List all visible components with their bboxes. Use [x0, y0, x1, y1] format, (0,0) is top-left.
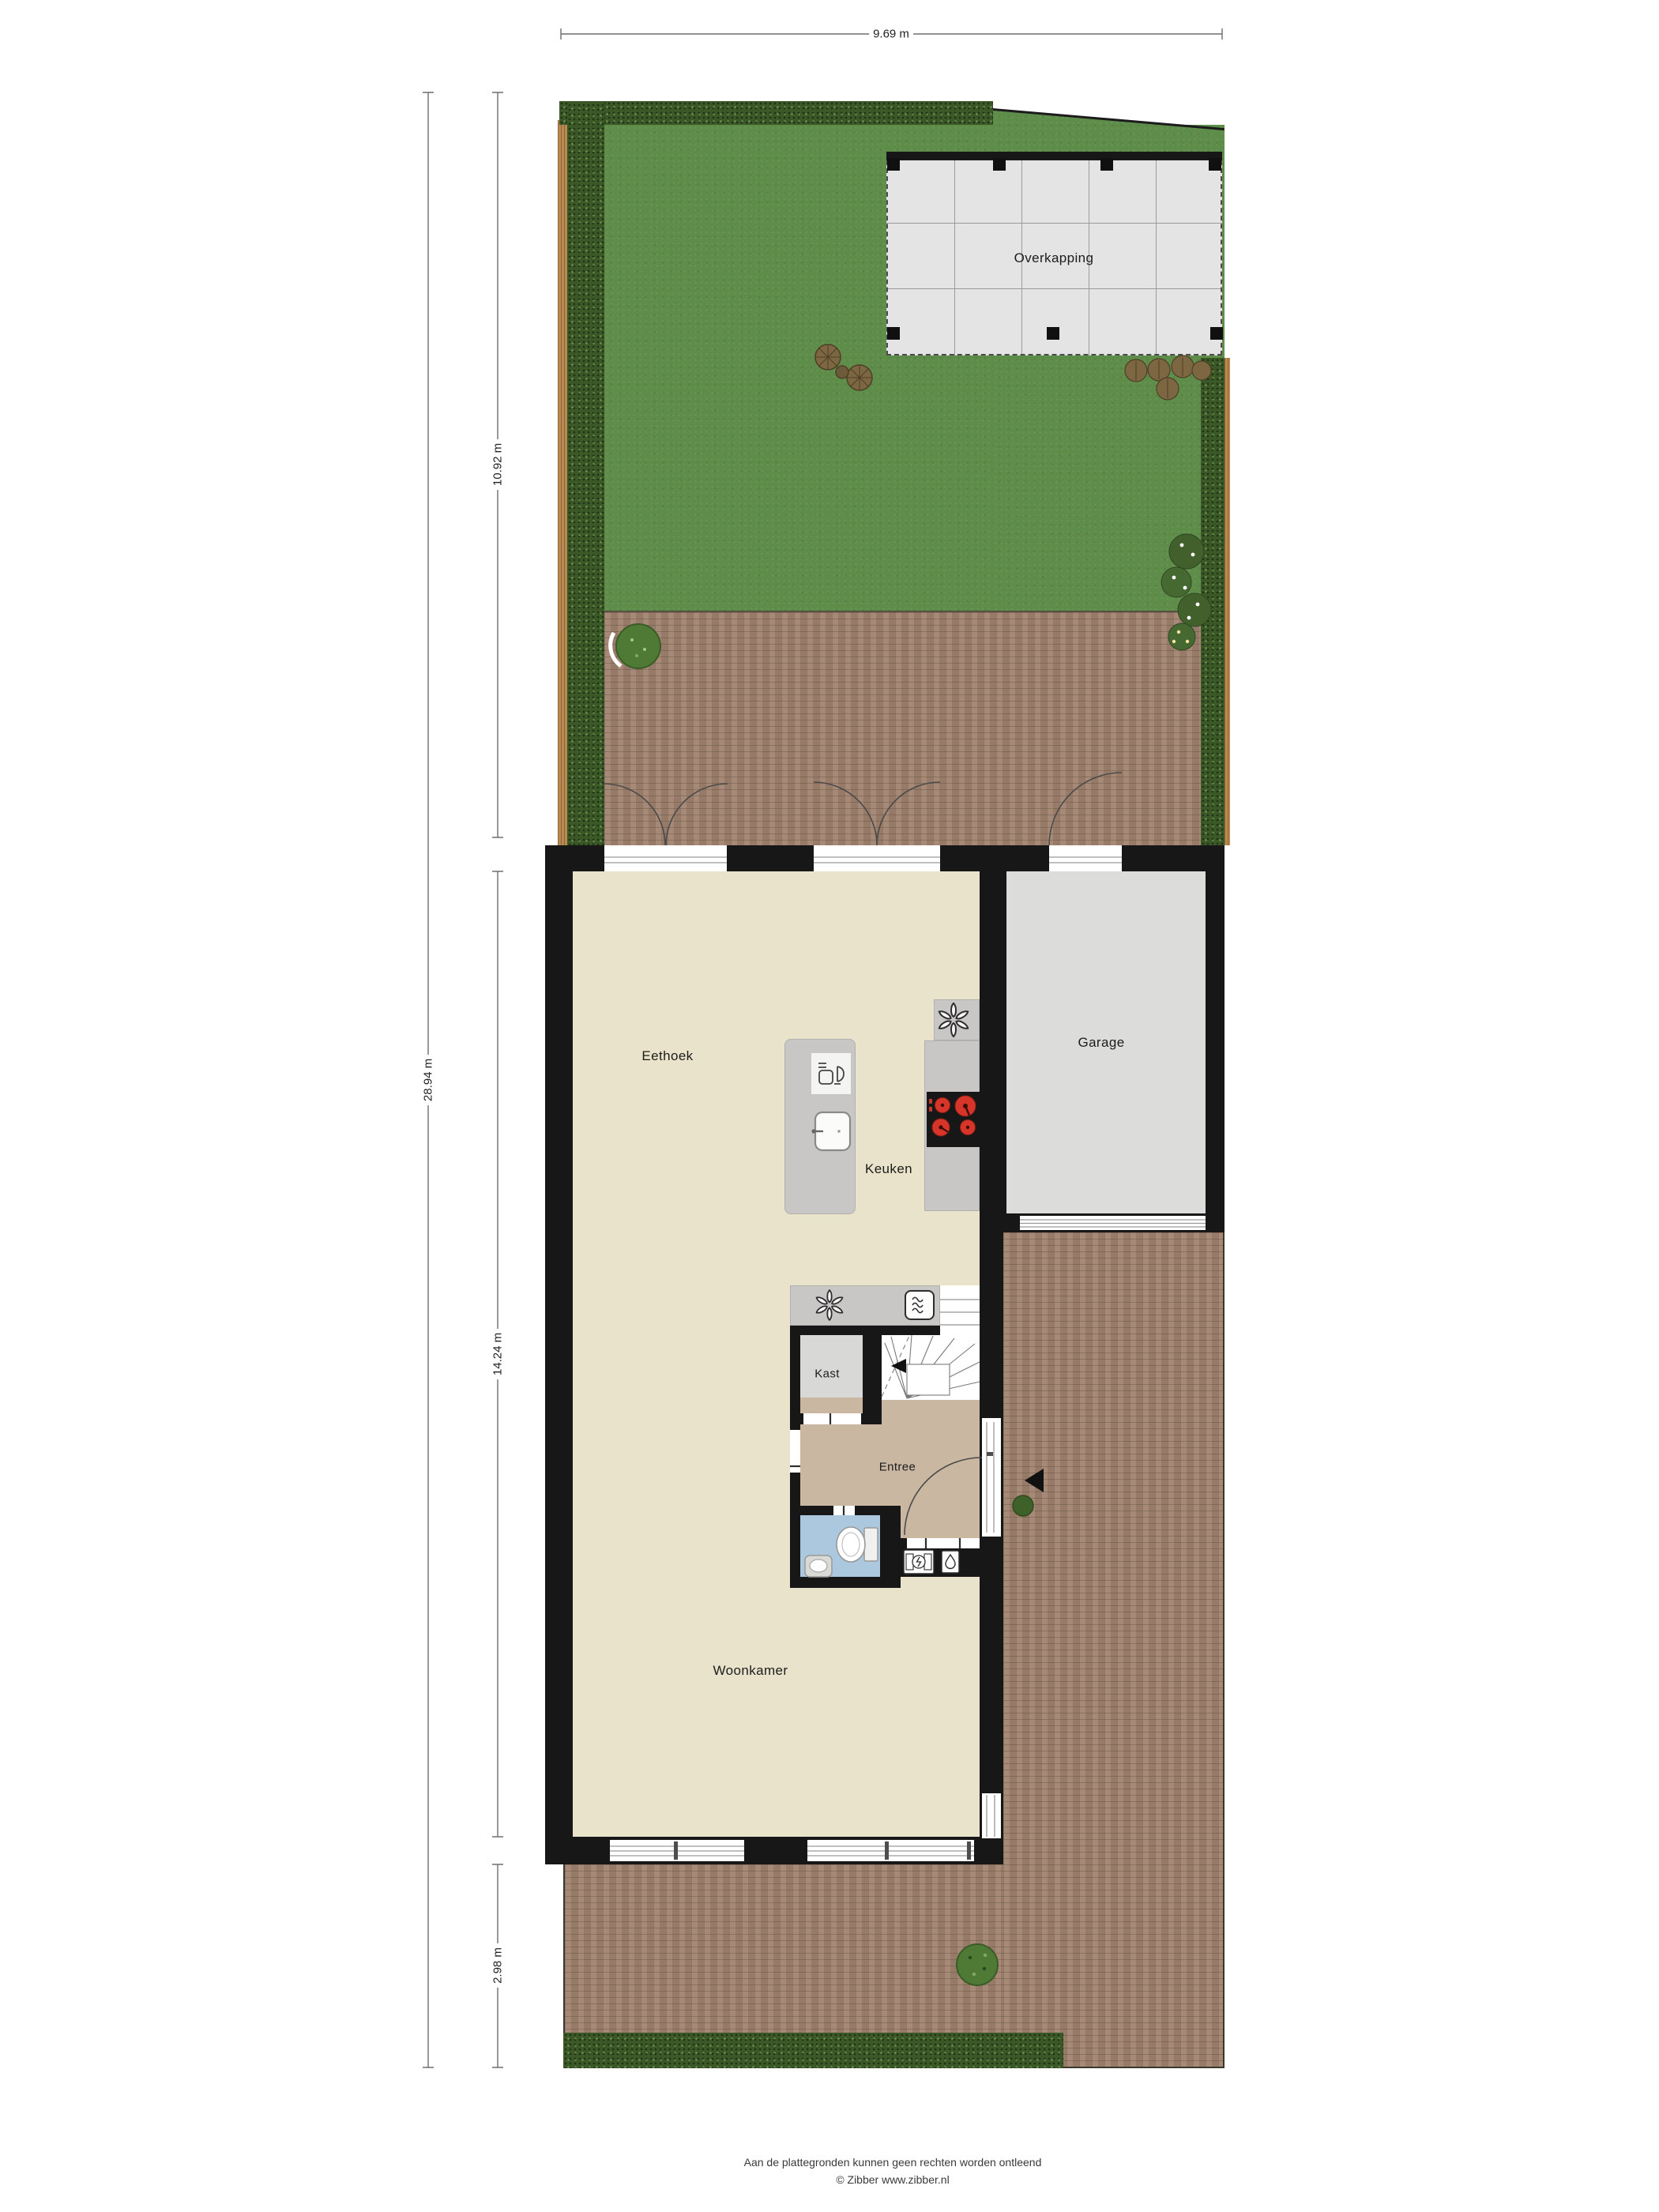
room-label-overkapping: Overkapping	[1014, 250, 1094, 266]
oven-icon	[905, 1291, 934, 1319]
footer-disclaimer: Aan de plattegronden kunnen geen rechten…	[744, 2156, 1042, 2169]
washbasin-icon	[805, 1556, 832, 1577]
door-swing-arcs	[604, 773, 1122, 1535]
flowering-shrub-icon	[1161, 534, 1211, 650]
dimension-total-width: 9.69 m	[869, 27, 913, 42]
floorplan-page: Overkapping Eethoek Keuken Garage Kast E…	[0, 0, 1659, 2212]
toilet-icon	[837, 1527, 878, 1562]
footer-copyright: © Zibber www.zibber.nl	[836, 2173, 949, 2186]
fan-icon	[815, 1290, 843, 1320]
front-door-bush-icon	[1013, 1495, 1033, 1516]
sink-icon	[811, 1112, 850, 1150]
window-mullions	[674, 1452, 993, 1860]
dishwasher-icon	[818, 1063, 844, 1084]
electric-meter-icon	[904, 1550, 934, 1574]
room-label-eethoek: Eethoek	[641, 1048, 693, 1064]
dimension-garden-depth: 10.92 m	[491, 439, 506, 490]
dimension-front-yard-depth: 2.98 m	[491, 1943, 506, 1988]
entrance-arrow-icon	[1025, 1469, 1044, 1492]
terrace-bush-icon	[611, 624, 660, 668]
cooktop-icon	[929, 1096, 976, 1136]
room-label-kast: Kast	[814, 1367, 840, 1381]
room-label-entree: Entree	[879, 1461, 916, 1474]
tree-cluster-icon	[1125, 355, 1211, 400]
room-label-keuken: Keuken	[865, 1161, 912, 1177]
fan-icon	[938, 1003, 969, 1036]
tree-icon	[815, 344, 872, 390]
room-label-woonkamer: Woonkamer	[713, 1663, 788, 1679]
front-yard-bush-icon	[957, 1944, 998, 1985]
plan-overlay	[0, 0, 1659, 2212]
dimension-house-depth: 14.24 m	[491, 1329, 506, 1379]
dimension-total-depth: 28.94 m	[421, 1055, 436, 1105]
room-label-garage: Garage	[1078, 1035, 1124, 1051]
window-detail-lines	[604, 857, 1206, 1856]
water-meter-icon	[942, 1551, 959, 1573]
